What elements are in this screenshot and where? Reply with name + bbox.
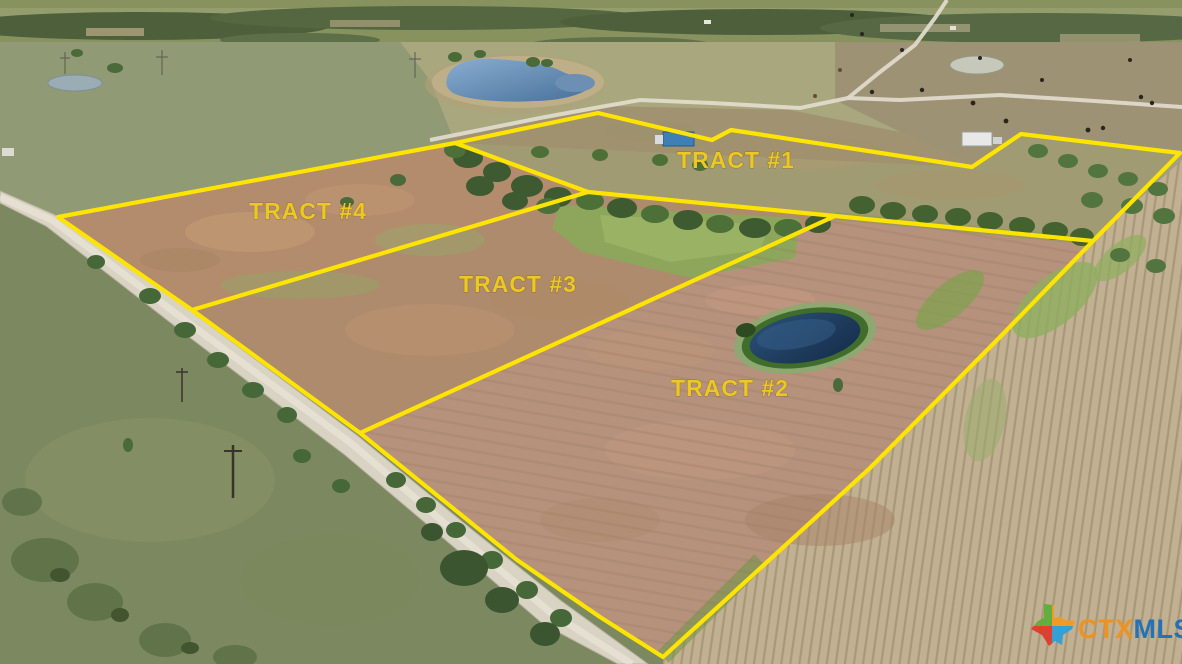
tract-3-label: TRACT #3 bbox=[459, 271, 577, 297]
aerial-photo: TRACT #1 TRACT #2 TRACT #3 TRACT #4 CTXM… bbox=[0, 0, 1182, 664]
watermark-suffix: MLS bbox=[1134, 614, 1182, 644]
tract-1-label: TRACT #1 bbox=[677, 147, 795, 173]
tract-2-label: TRACT #2 bbox=[671, 375, 789, 401]
small-pond-right bbox=[950, 56, 1004, 74]
svg-text:CTXMLS: CTXMLS bbox=[1078, 614, 1182, 644]
watermark-prefix: CTX bbox=[1078, 614, 1134, 644]
tract-4-label: TRACT #4 bbox=[249, 198, 367, 224]
blue-pond bbox=[432, 56, 604, 108]
small-pond-left bbox=[48, 75, 102, 91]
white-house bbox=[962, 132, 992, 146]
aerial-photo-scene: TRACT #1 TRACT #2 TRACT #3 TRACT #4 CTXM… bbox=[0, 0, 1182, 664]
